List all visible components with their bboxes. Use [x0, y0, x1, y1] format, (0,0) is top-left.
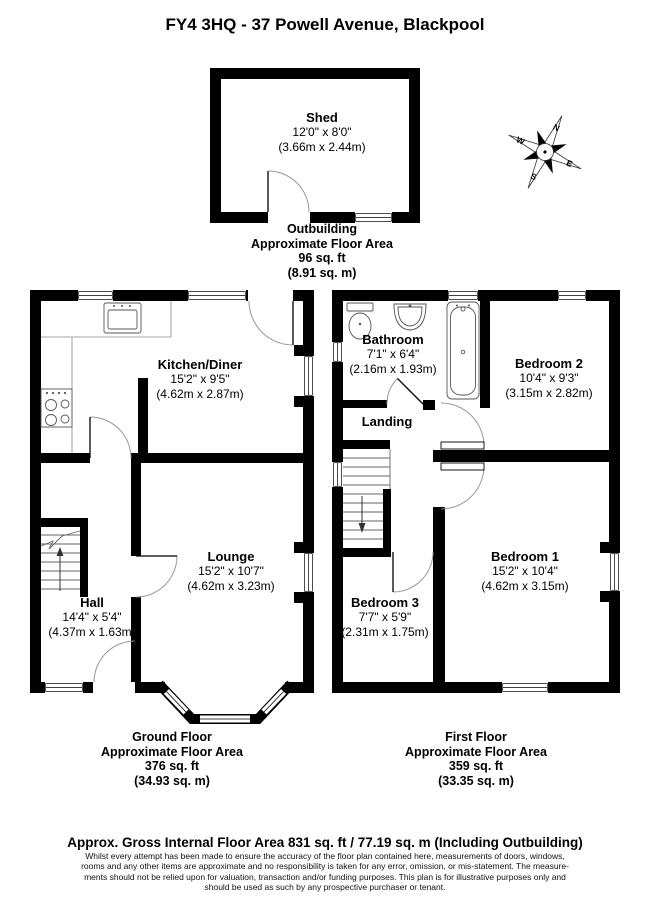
floorplan-page: FY4 3HQ - 37 Powell Avenue, Blackpool Sh…: [0, 0, 650, 919]
kitchen-sink: [104, 303, 141, 333]
bedroom2-top-window: [558, 290, 586, 301]
bathroom-side-window: [332, 342, 343, 362]
room-label-hall: Hall 14'4" x 5'4" (4.37m x 1.63m): [48, 595, 135, 640]
room-dim-imperial: 14'4" x 5'4": [48, 610, 135, 625]
floor-area-ft: 96 sq. ft: [251, 251, 393, 266]
kitchen-top-window: [78, 290, 113, 301]
front-door-opening: [93, 682, 135, 693]
bedroom3-door: [393, 552, 433, 592]
room-name: Hall: [48, 595, 135, 610]
room-dim-imperial: 15'2" x 9'5": [156, 372, 243, 387]
room-name: Landing: [362, 414, 413, 429]
page-title: FY4 3HQ - 37 Powell Avenue, Blackpool: [166, 15, 485, 35]
room-dim-metric: (3.66m x 2.44m): [278, 140, 365, 155]
room-dim-imperial: 12'0" x 8'0": [278, 125, 365, 140]
room-dim-imperial: 7'1" x 6'4": [349, 347, 436, 362]
kitchen-top-window-2: [188, 290, 246, 301]
hob: [41, 389, 72, 427]
bedroom2-door: [441, 403, 484, 449]
room-name: Bedroom 1: [481, 549, 568, 564]
back-door-opening: [248, 290, 293, 301]
room-name: Bedroom 3: [341, 595, 428, 610]
ground-floor-plan: [25, 285, 325, 730]
disclaimer-line: should be used as such by any prospectiv…: [0, 882, 650, 892]
hall-front-window: [45, 682, 83, 693]
floor-subtitle: Approximate Floor Area: [101, 745, 243, 760]
room-label-bathroom: Bathroom 7'1" x 6'4" (2.16m x 1.93m): [349, 332, 436, 377]
floor-area-ft: 376 sq. ft: [101, 759, 243, 774]
room-label-bedroom3: Bedroom 3 7'7" x 5'9" (2.31m x 1.75m): [341, 595, 428, 640]
room-label-kitchen: Kitchen/Diner 15'2" x 9'5" (4.62m x 2.87…: [156, 357, 243, 402]
room-name: Shed: [278, 110, 365, 125]
bathroom-top-window: [448, 290, 478, 301]
room-dim-metric: (3.15m x 2.82m): [505, 386, 592, 401]
bathroom-door: [387, 379, 423, 405]
front-door: [94, 641, 135, 682]
room-label-bedroom1: Bedroom 1 15'2" x 10'4" (4.62m x 3.15m): [481, 549, 568, 594]
room-dim-imperial: 7'7" x 5'9": [341, 610, 428, 625]
stairs-down-arrow: [359, 496, 366, 533]
bay-opening: [165, 682, 285, 693]
outbuilding-footer: Outbuilding Approximate Floor Area 96 sq…: [251, 222, 393, 280]
disclaimer: Whilst every attempt has been made to en…: [0, 851, 650, 893]
room-dim-imperial: 15'2" x 10'7": [187, 564, 274, 579]
bedroom1-side-window: [609, 553, 620, 591]
bathtub: [447, 302, 479, 399]
landing-side-window: [332, 462, 343, 487]
disclaimer-line: rooms and any other items are approximat…: [0, 861, 650, 871]
lounge-door-opening: [131, 556, 141, 597]
kitchen-hall-door: [90, 417, 131, 458]
floor-title: Ground Floor: [101, 730, 243, 745]
kitchen-side-window: [303, 356, 314, 396]
lounge-door: [136, 556, 177, 597]
floor-title: First Floor: [405, 730, 547, 745]
kitchen-door-opening: [90, 453, 131, 463]
room-dim-imperial: 15'2" x 10'4": [481, 564, 568, 579]
room-dim-metric: (4.62m x 2.87m): [156, 387, 243, 402]
floor-subtitle: Approximate Floor Area: [251, 237, 393, 252]
disclaimer-line: Whilst every attempt has been made to en…: [0, 851, 650, 861]
disclaimer-line: ments should not be relied upon for valu…: [0, 872, 650, 882]
basin: [394, 304, 426, 330]
room-name: Kitchen/Diner: [156, 357, 243, 372]
floor-area-m: (34.93 sq. m): [101, 774, 243, 789]
back-door: [249, 301, 293, 345]
staircase-down: [343, 449, 390, 539]
room-label-landing: Landing: [362, 414, 413, 429]
room-label-lounge: Lounge 15'2" x 10'7" (4.62m x 3.23m): [187, 549, 274, 594]
room-label-shed: Shed 12'0" x 8'0" (3.66m x 2.44m): [278, 110, 365, 155]
floor-subtitle: Approximate Floor Area: [405, 745, 547, 760]
room-dim-metric: (4.62m x 3.23m): [187, 579, 274, 594]
ground-floor-footer: Ground Floor Approximate Floor Area 376 …: [101, 730, 243, 788]
shed-door: [268, 171, 309, 212]
lounge-side-window: [303, 553, 314, 592]
room-dim-metric: (4.37m x 1.63m): [48, 625, 135, 640]
floor-area-ft: 359 sq. ft: [405, 759, 547, 774]
floor-area-m: (8.91 sq. m): [251, 266, 393, 281]
bedroom1-door: [441, 463, 484, 509]
room-dim-metric: (4.62m x 3.15m): [481, 579, 568, 594]
room-name: Lounge: [187, 549, 274, 564]
floor-area-m: (33.35 sq. m): [405, 774, 547, 789]
gross-area-summary: Approx. Gross Internal Floor Area 831 sq…: [67, 835, 583, 850]
floor-title: Outbuilding: [251, 222, 393, 237]
room-dim-metric: (2.31m x 1.75m): [341, 625, 428, 640]
room-dim-imperial: 10'4" x 9'3": [505, 371, 592, 386]
stairs-up-arrow: [57, 547, 64, 591]
room-dim-metric: (2.16m x 1.93m): [349, 362, 436, 377]
bedroom1-bottom-window: [502, 682, 548, 693]
room-label-bedroom2: Bedroom 2 10'4" x 9'3" (3.15m x 2.82m): [505, 356, 592, 401]
first-floor-footer: First Floor Approximate Floor Area 359 s…: [405, 730, 547, 788]
compass-rose: N E S W: [495, 102, 595, 202]
room-name: Bedroom 2: [505, 356, 592, 371]
room-name: Bathroom: [349, 332, 436, 347]
